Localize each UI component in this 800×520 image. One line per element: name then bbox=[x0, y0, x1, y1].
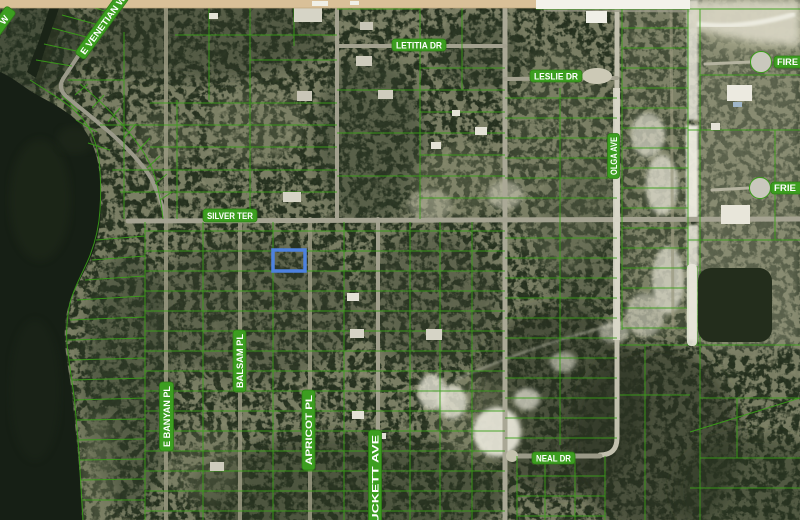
svg-text:NEAL DR: NEAL DR bbox=[536, 454, 571, 464]
svg-text:FIRE: FIRE bbox=[777, 57, 798, 67]
svg-text:LESLIE DR: LESLIE DR bbox=[534, 72, 578, 82]
svg-text:E BANYAN PL: E BANYAN PL bbox=[162, 385, 172, 447]
svg-text:SILVER TER: SILVER TER bbox=[207, 211, 253, 221]
svg-text:FRIE: FRIE bbox=[774, 183, 796, 193]
svg-text:OLGA AVE: OLGA AVE bbox=[609, 137, 619, 175]
svg-text:BALSAM PL: BALSAM PL bbox=[235, 333, 245, 388]
svg-text:APRICOT PL: APRICOT PL bbox=[304, 394, 314, 465]
svg-text:PUCKETT AVE: PUCKETT AVE bbox=[371, 435, 381, 520]
svg-text:LETITIA DR: LETITIA DR bbox=[396, 41, 442, 51]
